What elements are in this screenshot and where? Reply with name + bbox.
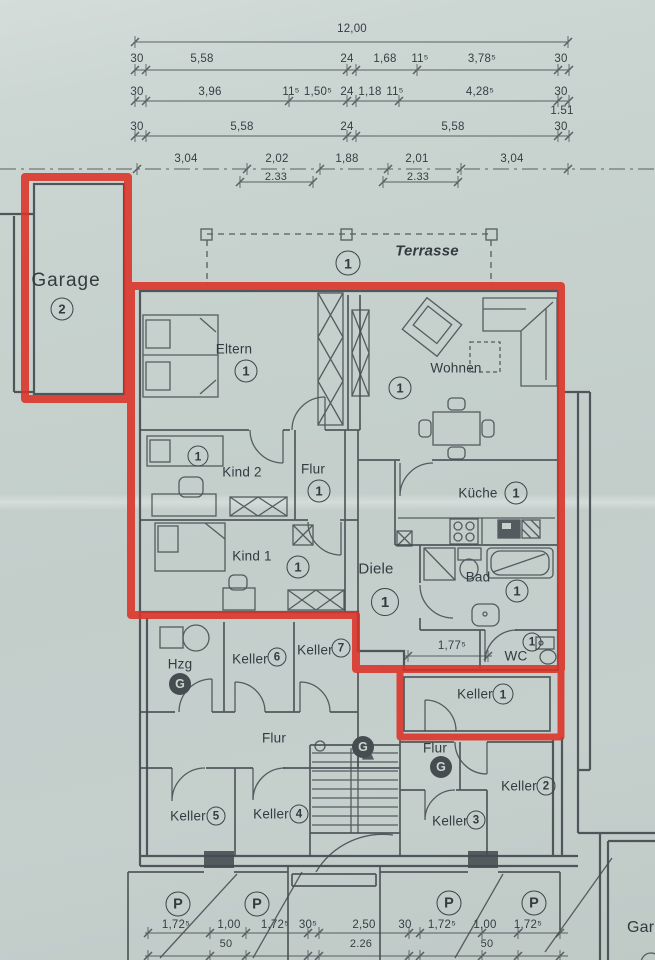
dim-label: 30 bbox=[554, 121, 567, 133]
room-number-garage: 2 bbox=[51, 298, 74, 321]
room-number-kind2: 1 bbox=[188, 446, 209, 467]
dim-label: 11⁵ bbox=[411, 53, 428, 65]
dim-label: 2,01 bbox=[405, 153, 428, 165]
dim-label: 30 bbox=[554, 53, 567, 65]
room-number-keller6: 6 bbox=[268, 648, 287, 667]
dim-label: 1,00 bbox=[473, 919, 496, 931]
dim-label: 24 bbox=[340, 53, 353, 65]
dim-label: 30 bbox=[554, 86, 567, 98]
dim-label: 24 bbox=[340, 86, 353, 98]
room-label-hzg: Hzg bbox=[168, 657, 193, 672]
room-label-keller1: Keller bbox=[457, 687, 493, 702]
dim-label: 1,72⁵ bbox=[428, 919, 456, 931]
room-number-kind1: 1 bbox=[287, 556, 310, 579]
room-label-keller4: Keller bbox=[253, 807, 289, 822]
dim-label: 3,04 bbox=[174, 153, 197, 165]
room-number-eltern: 1 bbox=[235, 360, 258, 383]
room-number-wc: 1 bbox=[523, 633, 542, 652]
dim-label: 1,18 bbox=[358, 86, 381, 98]
dim-label: 30⁵ bbox=[299, 919, 317, 931]
dim-label: 2,02 bbox=[265, 153, 288, 165]
dim-label: 4,28⁵ bbox=[466, 86, 494, 98]
red-outline-keller1 bbox=[400, 669, 561, 737]
dim-label: 5,58 bbox=[441, 121, 464, 133]
floorplan-linework bbox=[0, 0, 655, 960]
dim-label: 3,96 bbox=[198, 86, 221, 98]
dim-label: 1,72⁵ bbox=[162, 919, 190, 931]
room-number-terrasse: 1 bbox=[336, 251, 361, 276]
badge-parking: P bbox=[522, 891, 547, 916]
badge-parking: P bbox=[437, 891, 462, 916]
room-number-keller2: 2 bbox=[537, 777, 556, 796]
dim-label: 5,58 bbox=[230, 121, 253, 133]
room-label-eltern: Eltern bbox=[216, 342, 252, 357]
dim-label: 1,72⁵ bbox=[514, 919, 542, 931]
room-number-wohnen: 1 bbox=[389, 377, 412, 400]
room-label-flur-base-right: Flur bbox=[423, 741, 447, 756]
badge-g-base-right: G bbox=[430, 756, 452, 778]
room-label-kueche: Küche bbox=[458, 486, 497, 501]
dim-label: 1.51 bbox=[550, 105, 573, 117]
room-label-garage: Garage bbox=[31, 270, 100, 292]
dim-label: 2.33 bbox=[265, 171, 287, 183]
dim-label: 50 bbox=[220, 938, 233, 950]
room-label-keller2: Keller bbox=[501, 779, 537, 794]
room-number-flur-upper: 1 bbox=[308, 480, 331, 503]
room-label-keller5: Keller bbox=[170, 809, 206, 824]
dim-label: 2.33 bbox=[407, 171, 429, 183]
room-number-keller4: 4 bbox=[290, 805, 309, 824]
room-number-keller7: 7 bbox=[332, 639, 351, 658]
room-number-kueche: 1 bbox=[505, 482, 528, 505]
room-number-diele: 1 bbox=[371, 588, 399, 616]
room-label-keller7: Keller bbox=[297, 643, 333, 658]
badge-g-base-left: G bbox=[352, 736, 374, 758]
floorplan-scan: 12,00 30 5,58 24 1,68 11⁵ 3,78⁵ 30 30 3,… bbox=[0, 0, 655, 960]
dim-label: 30 bbox=[130, 53, 143, 65]
dim-label: 1,68 bbox=[373, 53, 396, 65]
room-label-flur-base-left: Flur bbox=[262, 731, 286, 746]
room-label-keller3: Keller bbox=[432, 814, 468, 829]
room-number-keller5: 5 bbox=[207, 807, 226, 826]
dim-label: 1,72⁵ bbox=[261, 919, 289, 931]
dim-label: 3,78⁵ bbox=[468, 53, 496, 65]
dim-label: 50 bbox=[481, 938, 494, 950]
room-label-garage-right: Gar bbox=[627, 919, 654, 937]
room-number-keller1: 1 bbox=[493, 684, 514, 705]
badge-parking: P bbox=[245, 892, 270, 917]
dim-label: 1,50⁵ bbox=[304, 86, 332, 98]
dim-label: 30 bbox=[130, 86, 143, 98]
room-label-bad: Bad bbox=[466, 570, 491, 585]
dim-label: 2.26 bbox=[350, 938, 372, 950]
room-label-terrasse: Terrasse bbox=[395, 243, 459, 260]
room-label-keller6: Keller bbox=[232, 652, 268, 667]
dim-label: 1,88 bbox=[335, 153, 358, 165]
dim-label: 11⁵ bbox=[282, 86, 299, 98]
dim-label-wc: 1,77⁵ bbox=[438, 640, 466, 652]
room-number-bad: 1 bbox=[506, 580, 529, 603]
dim-label-total: 12,00 bbox=[337, 23, 367, 35]
dim-label: 3,04 bbox=[500, 153, 523, 165]
room-label-diele: Diele bbox=[358, 561, 393, 578]
dim-label: 1,00 bbox=[217, 919, 240, 931]
dim-label: 30 bbox=[130, 121, 143, 133]
room-label-kind2: Kind 2 bbox=[222, 465, 261, 480]
room-label-kind1: Kind 1 bbox=[232, 549, 271, 564]
dim-label: 30 bbox=[398, 919, 411, 931]
room-label-wc: WC bbox=[505, 649, 528, 664]
badge-parking: P bbox=[166, 892, 191, 917]
dim-label: 5,58 bbox=[190, 53, 213, 65]
room-number-keller3: 3 bbox=[467, 811, 486, 830]
badge-g-hzg: G bbox=[169, 673, 191, 695]
dim-label: 24 bbox=[340, 121, 353, 133]
dim-label: 2,50 bbox=[352, 919, 375, 931]
room-label-flur-upper: Flur bbox=[301, 462, 325, 477]
dim-label: 11⁵ bbox=[386, 86, 403, 98]
room-label-wohnen: Wohnen bbox=[430, 361, 481, 376]
